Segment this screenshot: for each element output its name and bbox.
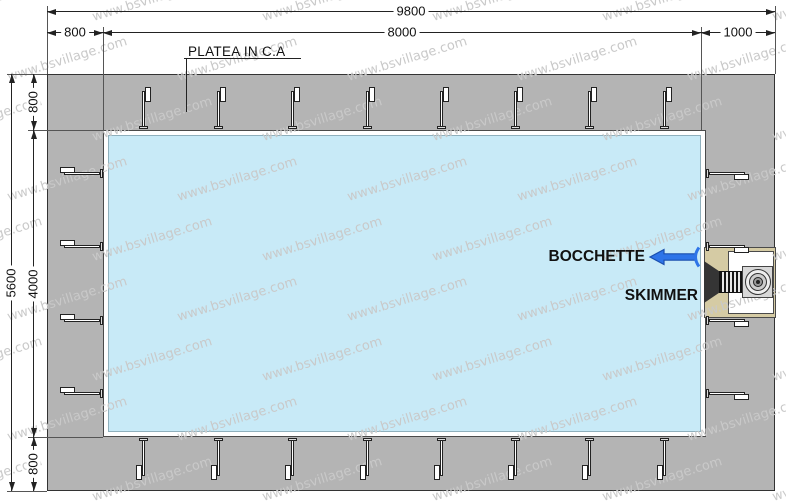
skimmer-label: SKIMMER xyxy=(598,287,698,305)
anchor-part xyxy=(734,174,749,180)
dim-pool-width: 4000 xyxy=(33,130,34,437)
dim-pool-length-value: 8000 xyxy=(385,26,420,40)
dim-top-offset: 800 xyxy=(33,74,34,130)
anchor-part xyxy=(734,247,749,253)
extension-line xyxy=(103,27,104,130)
anchor-part xyxy=(285,465,291,480)
anchor-part xyxy=(734,394,749,400)
dim-right-offset: 1000 xyxy=(701,32,775,33)
extension-line xyxy=(28,130,103,131)
anchor-part xyxy=(657,465,663,480)
dim-bottom-offset: 800 xyxy=(33,437,34,491)
anchor-part xyxy=(734,321,749,327)
extension-line xyxy=(47,6,48,74)
dim-pool-width-value: 4000 xyxy=(26,266,40,301)
anchor-part xyxy=(508,465,514,480)
arrow-up-icon xyxy=(31,74,37,83)
arrow-right-icon xyxy=(692,30,701,36)
anchor-part xyxy=(440,440,443,476)
watermark-text: www.bsvillage.com xyxy=(91,0,214,25)
anchor-part xyxy=(217,440,220,476)
dim-left-offset-value: 800 xyxy=(61,26,89,40)
arrow-down-icon xyxy=(9,482,15,491)
dim-top-offset-value: 800 xyxy=(27,88,41,116)
anchor-part xyxy=(366,440,369,476)
anchor-part xyxy=(443,87,449,102)
watermark-text: www.bsvillage.com xyxy=(0,214,44,265)
watermark-text: www.bsvillage.com xyxy=(0,0,44,25)
anchor-part xyxy=(60,167,75,173)
extension-line xyxy=(775,6,776,74)
anchor-part xyxy=(514,440,517,476)
anchor-part xyxy=(591,87,597,102)
arrow-down-icon xyxy=(31,428,37,437)
skimmer-hose-icon xyxy=(719,271,742,293)
anchor-part xyxy=(136,465,142,480)
dim-pool-length: 8000 xyxy=(103,32,701,33)
platea-label: PLATEA IN C.A xyxy=(188,44,285,59)
anchor-part xyxy=(142,440,145,476)
bocchette-arrow-icon xyxy=(648,245,704,269)
dim-total-width: 9800 xyxy=(47,11,775,12)
anchor-part xyxy=(60,240,75,246)
anchor-part xyxy=(100,389,103,398)
arrow-left-icon xyxy=(103,30,112,36)
arrow-left-icon xyxy=(47,9,56,15)
watermark-text: www.bsvillage.com xyxy=(431,0,554,25)
anchor-part xyxy=(369,87,375,102)
anchor-part xyxy=(666,87,672,102)
anchor-part xyxy=(360,465,366,480)
arrow-up-icon xyxy=(31,437,37,446)
anchor-part xyxy=(582,465,588,480)
bocchette-label: BOCCHETTE xyxy=(535,248,645,266)
anchor-part xyxy=(60,314,75,320)
extension-line xyxy=(701,27,702,130)
dim-bottom-offset-value: 800 xyxy=(27,450,41,478)
arrow-up-icon xyxy=(9,74,15,83)
pool-plan-diagram: www.bsvillage.comwww.bsvillage.comwww.bs… xyxy=(0,0,786,502)
platea-label-underline xyxy=(184,58,301,59)
extension-line xyxy=(28,437,103,438)
pool-water xyxy=(108,135,701,432)
dim-total-height: 5600 xyxy=(11,74,12,491)
arrow-right-icon xyxy=(766,30,775,36)
dim-left-offset: 800 xyxy=(47,32,103,33)
arrow-up-icon xyxy=(31,130,37,139)
extension-line xyxy=(7,491,47,492)
anchor-part xyxy=(294,87,300,102)
arrow-down-icon xyxy=(31,121,37,130)
anchor-part xyxy=(434,465,440,480)
anchor-part xyxy=(517,87,523,102)
anchor-part xyxy=(663,440,666,476)
watermark-text: www.bsvillage.com xyxy=(261,0,384,25)
anchor-part xyxy=(588,440,591,476)
arrow-right-icon xyxy=(766,9,775,15)
dim-total-width-value: 9800 xyxy=(394,5,429,19)
watermark-text: www.bsvillage.com xyxy=(0,334,44,385)
anchor-part xyxy=(60,387,75,393)
anchor-part xyxy=(100,242,103,251)
anchor-part xyxy=(100,316,103,325)
arrow-left-icon xyxy=(701,30,710,36)
watermark-text: www.bsvillage.com xyxy=(601,0,724,25)
anchor-part xyxy=(220,87,226,102)
anchor-part xyxy=(291,440,294,476)
dim-right-offset-value: 1000 xyxy=(721,26,756,40)
arrow-left-icon xyxy=(47,30,56,36)
arrow-right-icon xyxy=(94,30,103,36)
anchor-part xyxy=(211,465,217,480)
anchor-part xyxy=(100,169,103,178)
anchor-part xyxy=(145,87,151,102)
platea-leader-line xyxy=(186,58,187,112)
dim-total-height-value: 5600 xyxy=(4,265,18,300)
arrow-down-icon xyxy=(31,482,37,491)
skimmer-ring-core xyxy=(756,280,760,284)
